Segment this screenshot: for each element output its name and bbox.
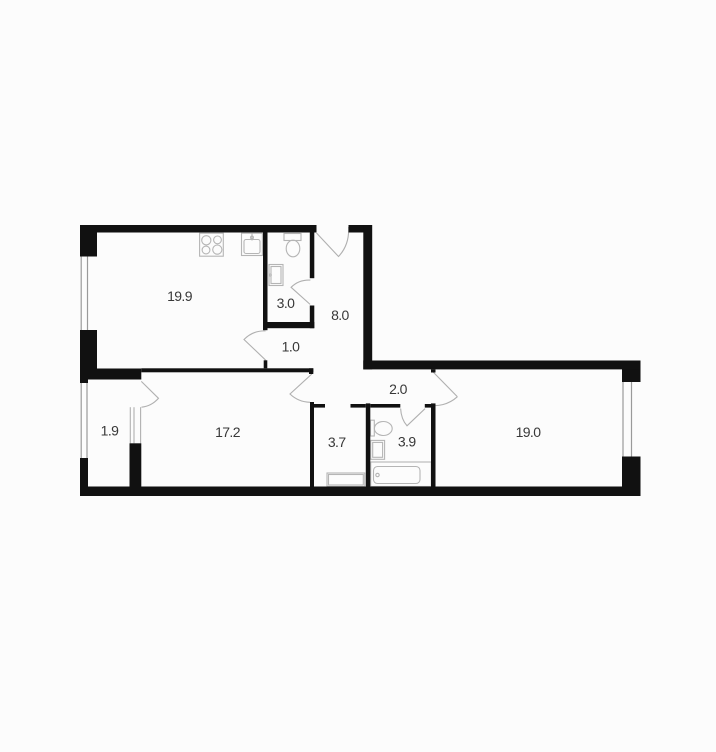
svg-text:3.9: 3.9 bbox=[398, 434, 416, 450]
svg-text:2.0: 2.0 bbox=[389, 381, 407, 397]
svg-text:17.2: 17.2 bbox=[215, 424, 241, 440]
svg-text:19.0: 19.0 bbox=[516, 424, 542, 440]
svg-text:1.9: 1.9 bbox=[101, 423, 119, 439]
svg-text:1.0: 1.0 bbox=[282, 339, 300, 355]
svg-text:19.9: 19.9 bbox=[167, 288, 193, 304]
svg-text:3.7: 3.7 bbox=[328, 434, 346, 450]
svg-text:8.0: 8.0 bbox=[331, 307, 349, 323]
svg-text:3.0: 3.0 bbox=[277, 295, 295, 311]
